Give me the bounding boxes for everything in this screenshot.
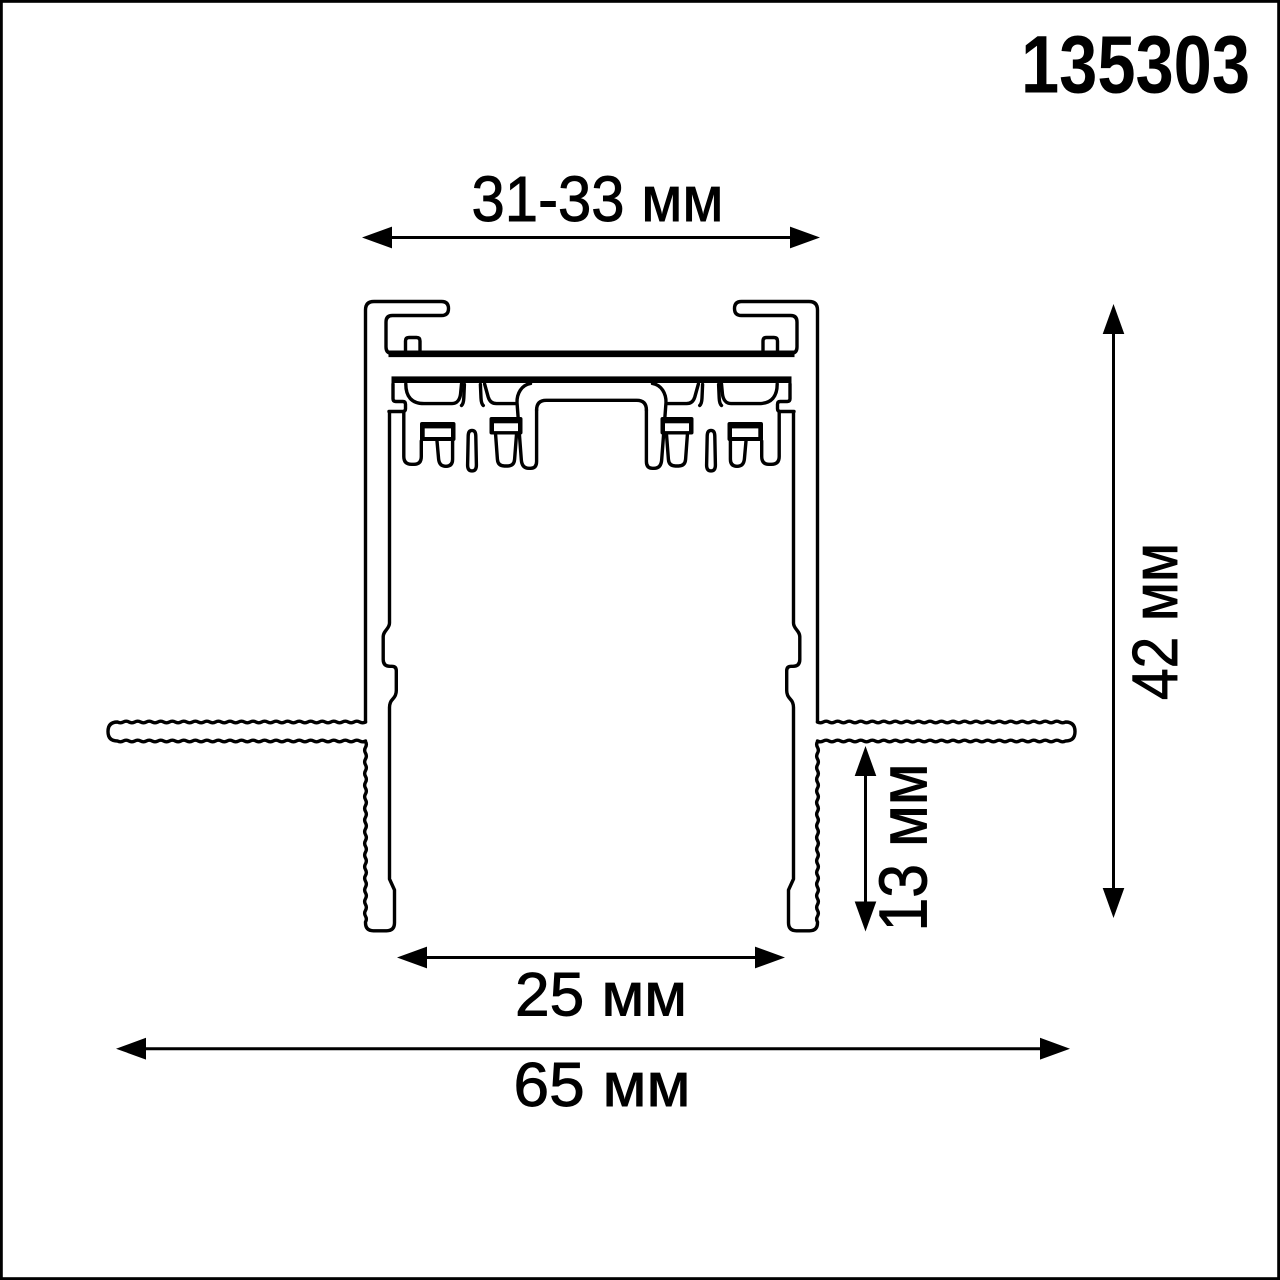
svg-text:65 мм: 65 мм xyxy=(514,1051,691,1120)
svg-text:13 мм: 13 мм xyxy=(866,764,942,932)
svg-text:42 мм: 42 мм xyxy=(1119,543,1191,700)
svg-text:25 мм: 25 мм xyxy=(515,961,687,1029)
svg-text:31-33 мм: 31-33 мм xyxy=(472,163,724,235)
svg-text:135303: 135303 xyxy=(1021,20,1250,111)
